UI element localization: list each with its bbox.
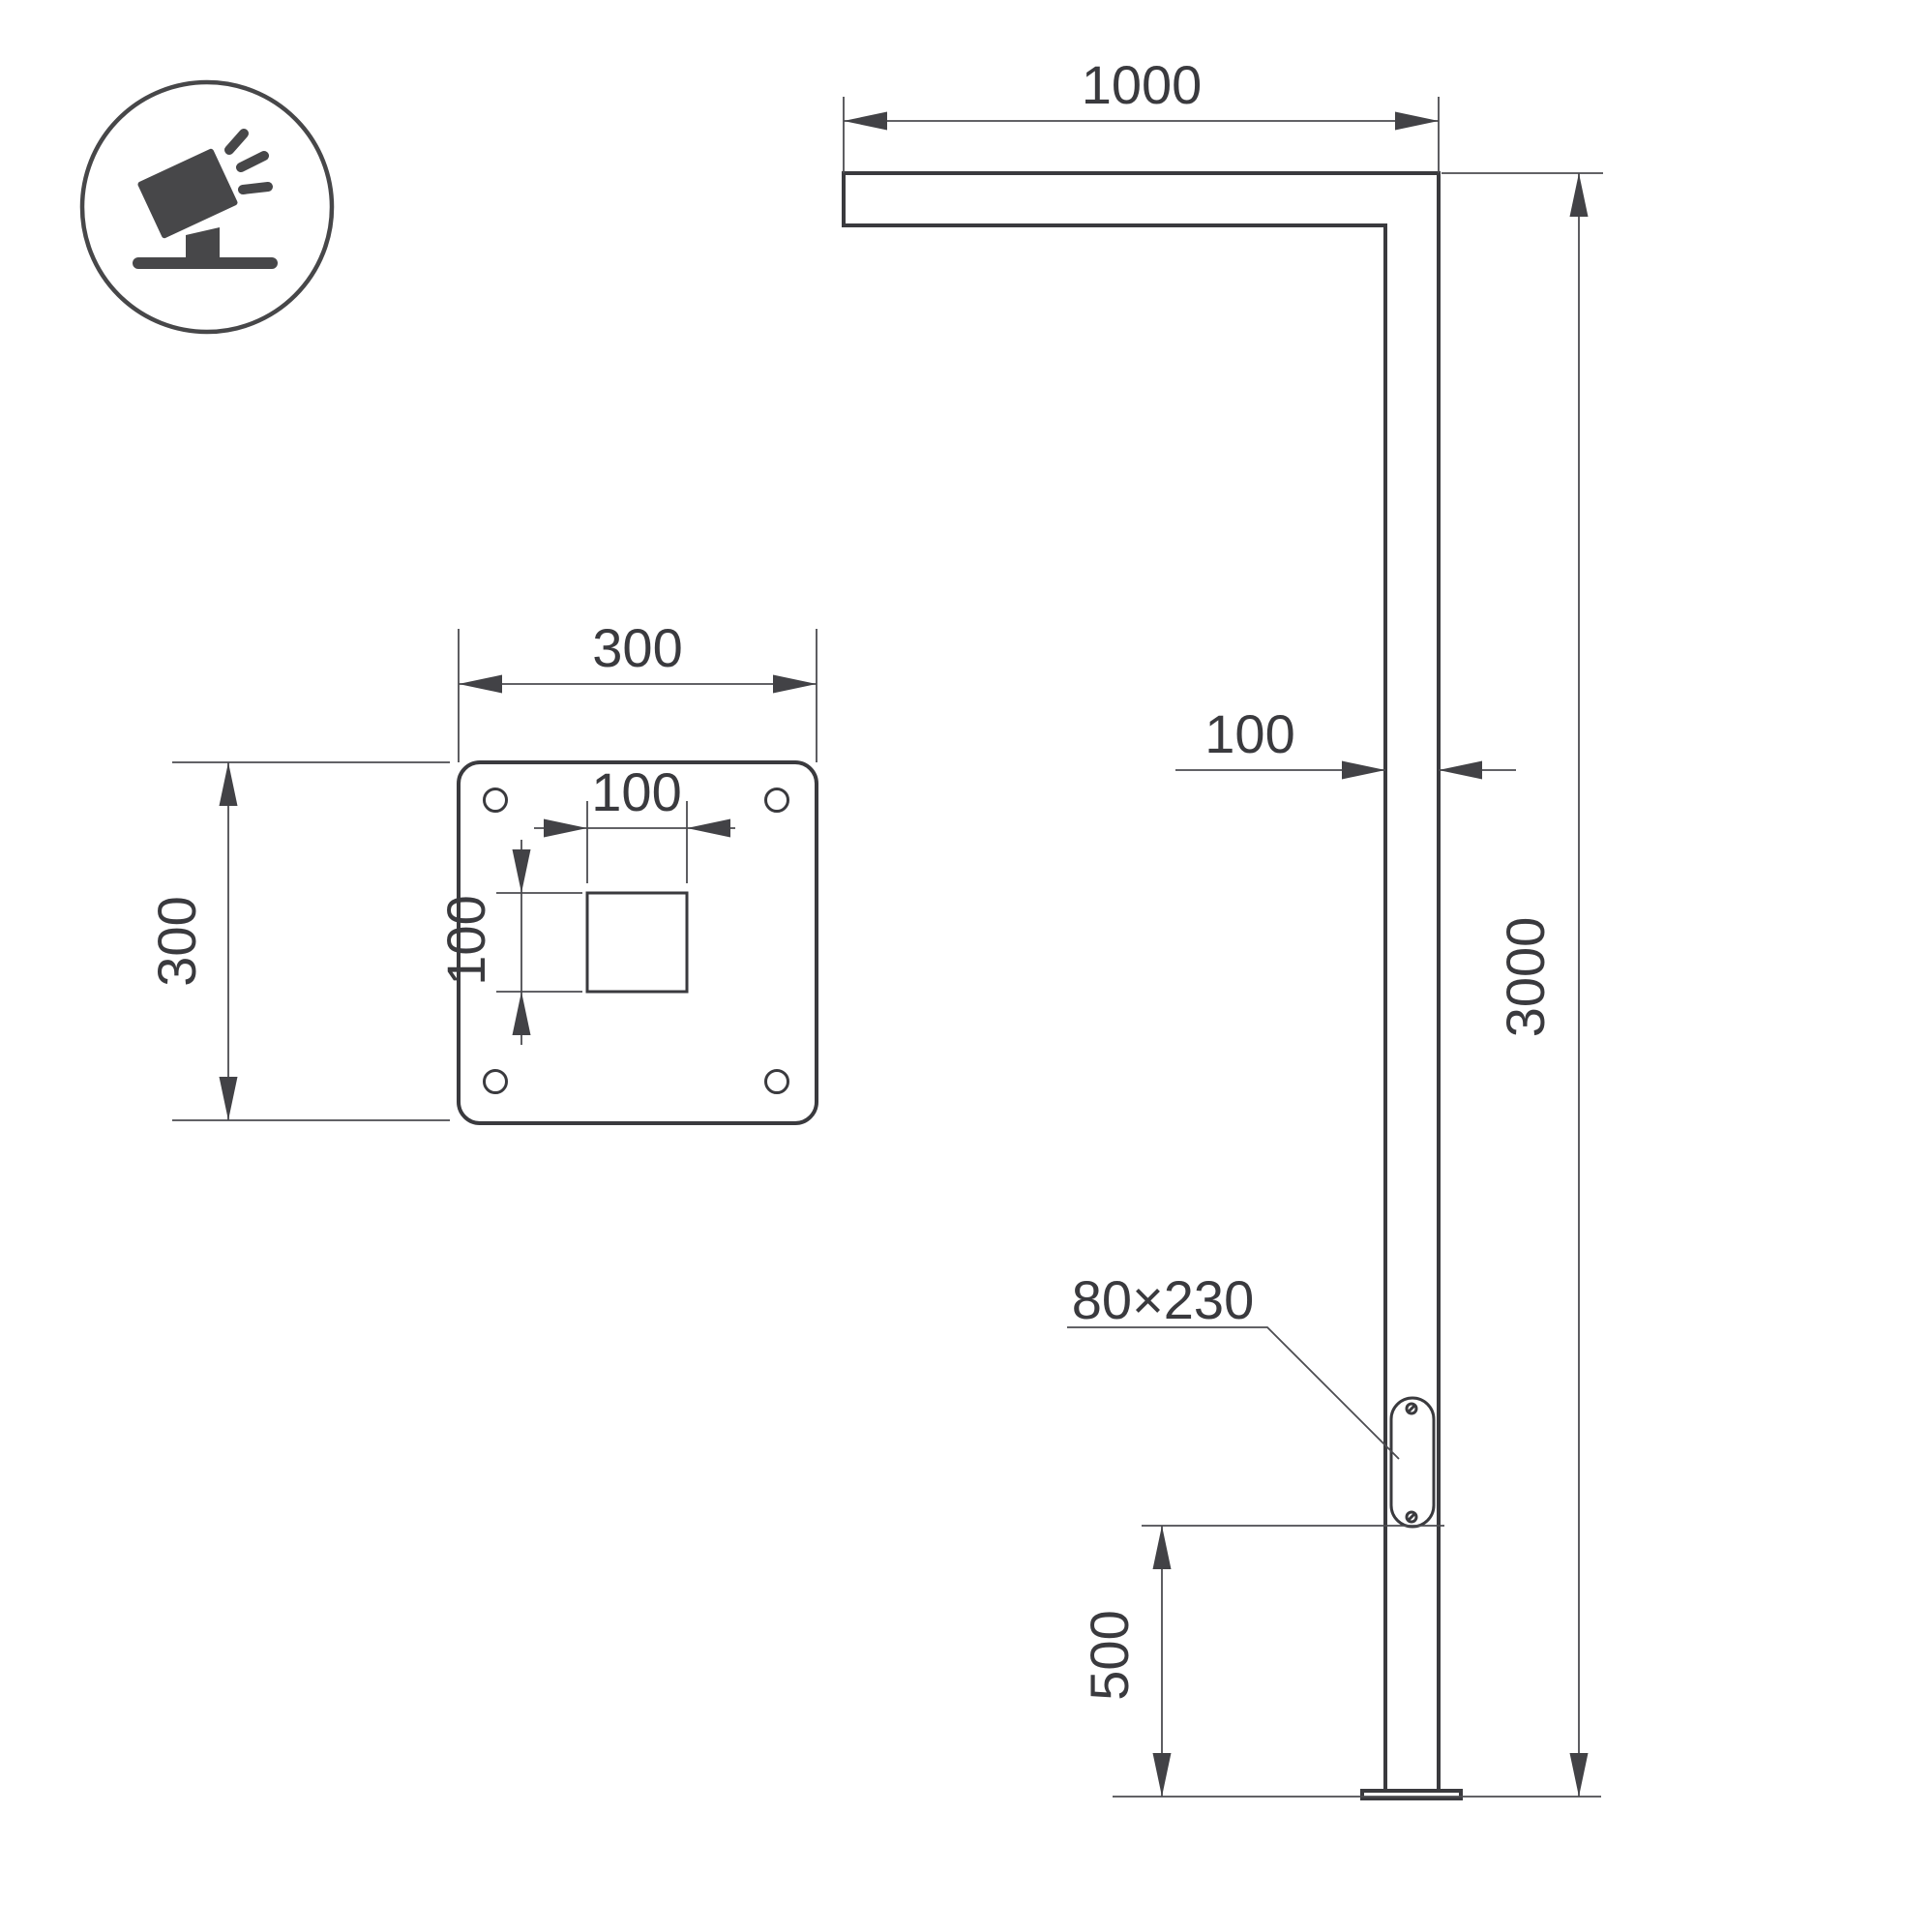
- dim-panel-bottom-height: 500: [1079, 1526, 1444, 1797]
- dim-arrow: [1395, 112, 1439, 131]
- dim-arm-length: 1000: [844, 54, 1439, 173]
- dim-plate-height: 300: [146, 762, 450, 1120]
- light-ray-icon: [229, 134, 244, 150]
- dim-plate-width: 300: [459, 617, 817, 762]
- dim-label-pole-width: 100: [1204, 703, 1294, 764]
- dim-label-pole-height: 3000: [1495, 917, 1556, 1038]
- dim-label-plate-height: 300: [146, 896, 207, 986]
- dim-pole-width: 100: [1175, 703, 1516, 780]
- dim-arrow: [1439, 761, 1482, 780]
- floodlight-ground-bar: [133, 257, 278, 269]
- dim-arrow: [1570, 1753, 1589, 1797]
- dim-pole-height: 3000: [1442, 173, 1603, 1797]
- pole-arm-outline: [844, 173, 1439, 1798]
- dim-label-hole-width: 100: [591, 761, 681, 822]
- dim-label-plate-width: 300: [592, 617, 682, 678]
- technical-drawing-canvas: 1000 100 3000 500 80×230: [0, 0, 1932, 1932]
- dim-arrow: [459, 675, 502, 694]
- dim-arrow: [220, 762, 238, 806]
- dim-arrow: [220, 1077, 238, 1120]
- drawing-svg: 1000 100 3000 500 80×230: [0, 0, 1932, 1932]
- leader-panel-size: 80×230: [1067, 1269, 1399, 1459]
- pole-front-view: [844, 173, 1461, 1798]
- light-ray-icon: [243, 187, 268, 190]
- floodlight-head: [137, 148, 239, 239]
- access-panel: [1391, 1398, 1434, 1527]
- leader-label-panel-size: 80×230: [1072, 1269, 1254, 1330]
- dim-label-panel-height: 500: [1079, 1610, 1140, 1700]
- dim-arrow: [1153, 1753, 1172, 1797]
- dim-arrow: [773, 675, 817, 694]
- floodlight-type-icon: [82, 82, 332, 332]
- light-ray-icon: [241, 156, 264, 167]
- dim-label-hole-height: 100: [435, 895, 496, 985]
- dim-arrow: [1342, 761, 1385, 780]
- dim-arrow: [844, 112, 887, 131]
- dim-arrow: [1570, 173, 1589, 217]
- dim-label-arm-length: 1000: [1082, 54, 1203, 115]
- dim-arrow: [1153, 1526, 1172, 1569]
- floodlight-post: [186, 227, 220, 262]
